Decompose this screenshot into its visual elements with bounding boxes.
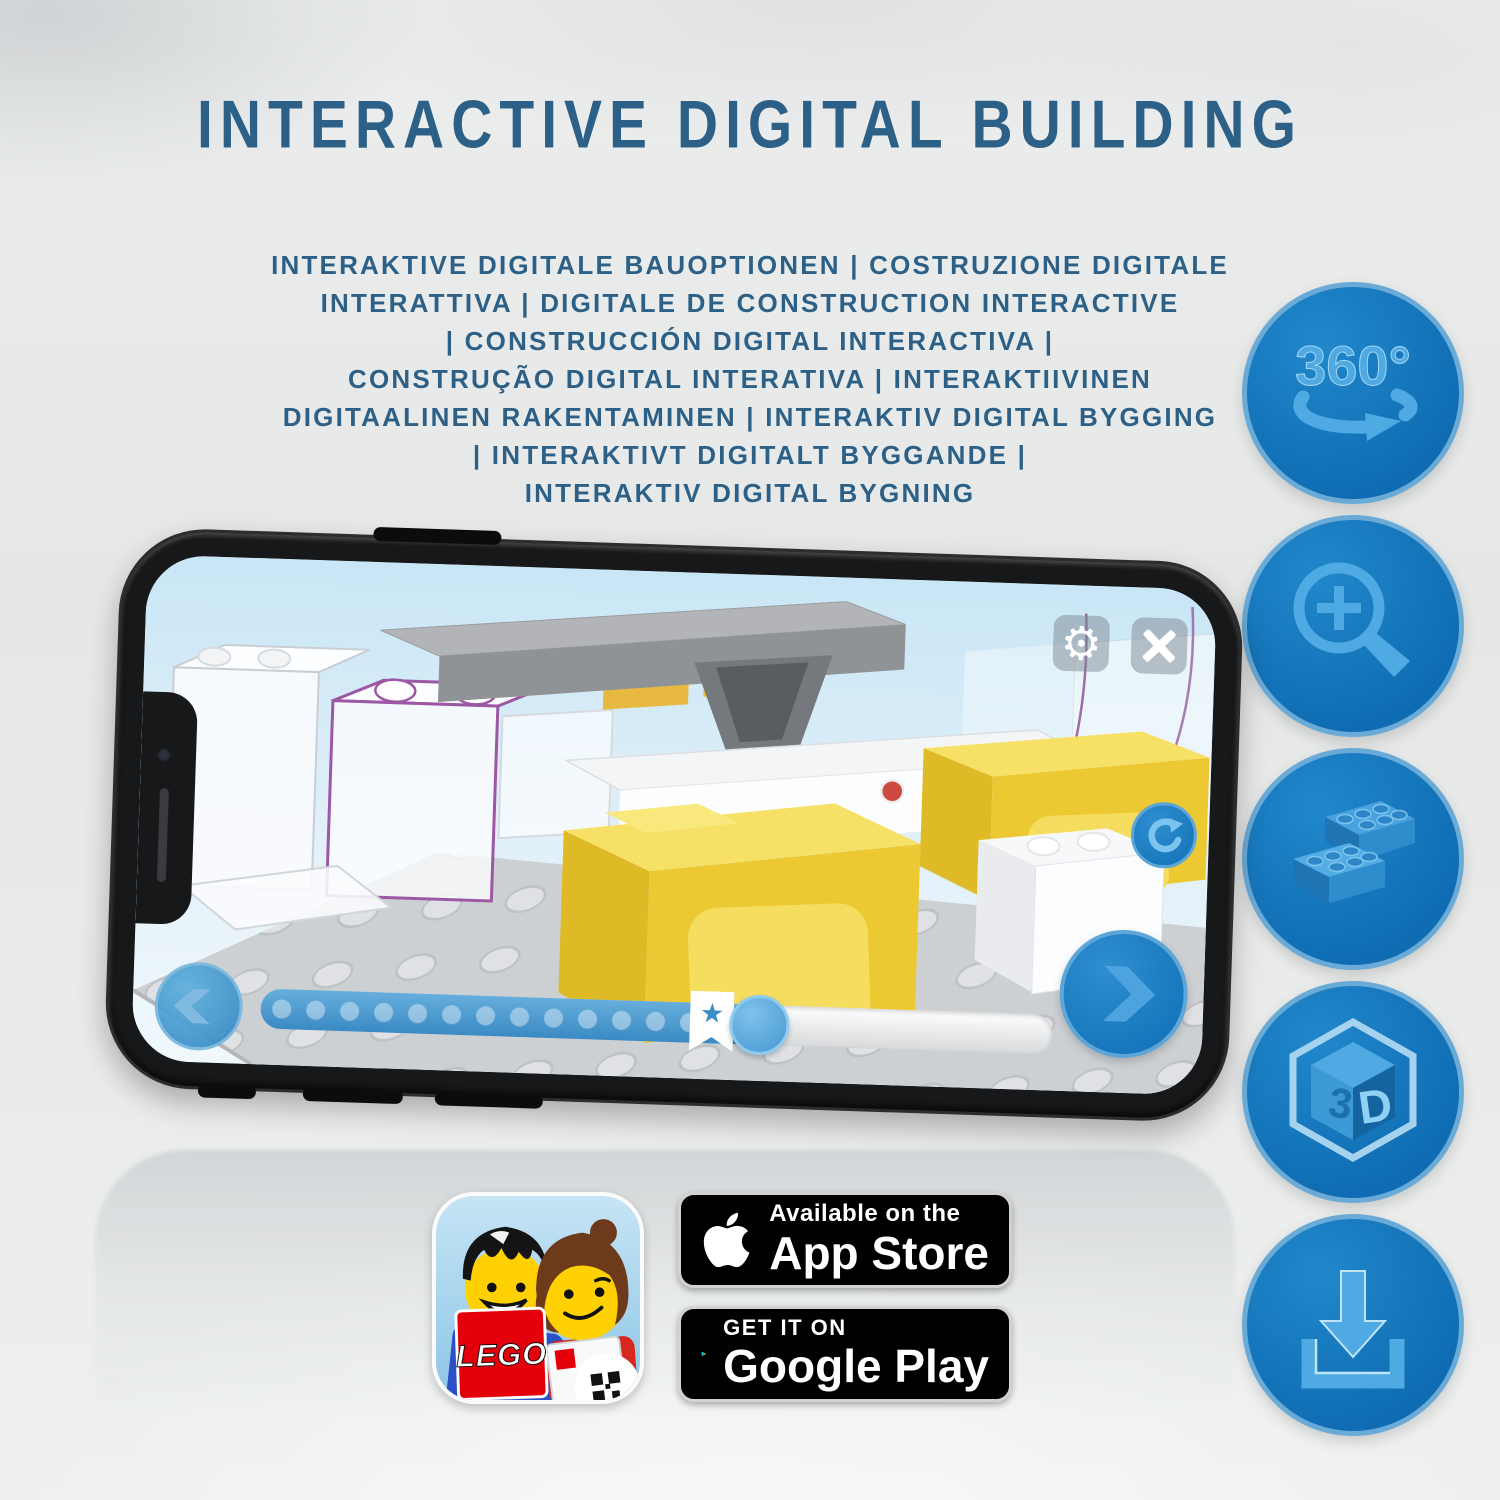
rotate-icon [1140, 811, 1187, 858]
svg-text:LEGO: LEGO [455, 1336, 547, 1374]
download-glyph [1273, 1245, 1433, 1405]
speaker-slot [157, 788, 169, 882]
lego-app-icon[interactable]: LEGO [432, 1192, 644, 1404]
chevron-left-icon [156, 962, 241, 1051]
chevron-right-icon [1062, 929, 1186, 1059]
close-button[interactable] [1130, 617, 1188, 675]
subtitle-line: CONSTRUÇÃO DIGITAL INTERATIVA | INTERAKT… [220, 360, 1280, 398]
phone-notch [135, 691, 198, 925]
subtitle-line: | CONSTRUCCIÓN DIGITAL INTERACTIVA | [220, 322, 1280, 360]
rotate-360-icon: 360° [1242, 282, 1464, 504]
cube-3d-glyph: 3 D [1273, 1012, 1433, 1172]
zoom-in-icon [1242, 515, 1464, 737]
subtitle-line: | INTERAKTIVT DIGITALT BYGGANDE | [220, 436, 1280, 474]
app-store-tagline: Available on the [769, 1200, 989, 1228]
next-step-button[interactable] [1058, 928, 1190, 1060]
zoom-in-glyph [1273, 546, 1433, 706]
camera-icon [157, 748, 171, 762]
cube-3d-icon: 3 D [1242, 981, 1464, 1203]
subtitle-multilanguage: INTERAKTIVE DIGITALE BAUOPTIONEN | COSTR… [220, 246, 1280, 512]
phone-volume-button [303, 1087, 403, 1104]
previous-step-button[interactable] [153, 961, 244, 1052]
subtitle-line: DIGITAALINEN RAKENTAMINEN | INTERAKTIV D… [220, 398, 1280, 436]
phone-mockup: ⚙ [103, 527, 1245, 1124]
google-play-icon [701, 1325, 706, 1383]
phone-volume-button [435, 1091, 543, 1109]
gear-icon: ⚙ [1060, 620, 1103, 667]
brick-glyph [1273, 779, 1433, 939]
settings-button[interactable]: ⚙ [1052, 614, 1110, 672]
google-play-badge[interactable]: GET IT ON Google Play [678, 1306, 1012, 1402]
page-title: INTERACTIVE DIGITAL BUILDING [0, 86, 1500, 164]
subtitle-line: INTERAKTIVE DIGITALE BAUOPTIONEN | COSTR… [220, 246, 1280, 284]
rotate-360-glyph: 360° [1273, 313, 1433, 473]
google-play-tagline: GET IT ON [723, 1315, 989, 1341]
phone-side-button [198, 1083, 256, 1099]
download-icon [1242, 1214, 1464, 1436]
lego-marketing-page: INTERACTIVE DIGITAL BUILDING INTERAKTIVE… [0, 0, 1500, 1500]
brick-icon [1242, 748, 1464, 970]
subtitle-line: INTERAKTIV DIGITAL BYGNING [220, 474, 1280, 512]
lego-app-artwork: LEGO [436, 1196, 640, 1400]
star-icon: ★ [700, 1000, 725, 1028]
phone-reflection [95, 1150, 1235, 1480]
svg-text:360°: 360° [1295, 334, 1411, 397]
app-screen: ⚙ [131, 554, 1217, 1095]
subtitle-line: INTERATTIVA | DIGITALE DE CONSTRUCTION I… [220, 284, 1280, 322]
app-store-badge[interactable]: Available on the App Store [678, 1192, 1012, 1288]
apple-icon [701, 1209, 752, 1271]
app-store-label: App Store [769, 1226, 989, 1280]
google-play-label: Google Play [723, 1339, 989, 1393]
